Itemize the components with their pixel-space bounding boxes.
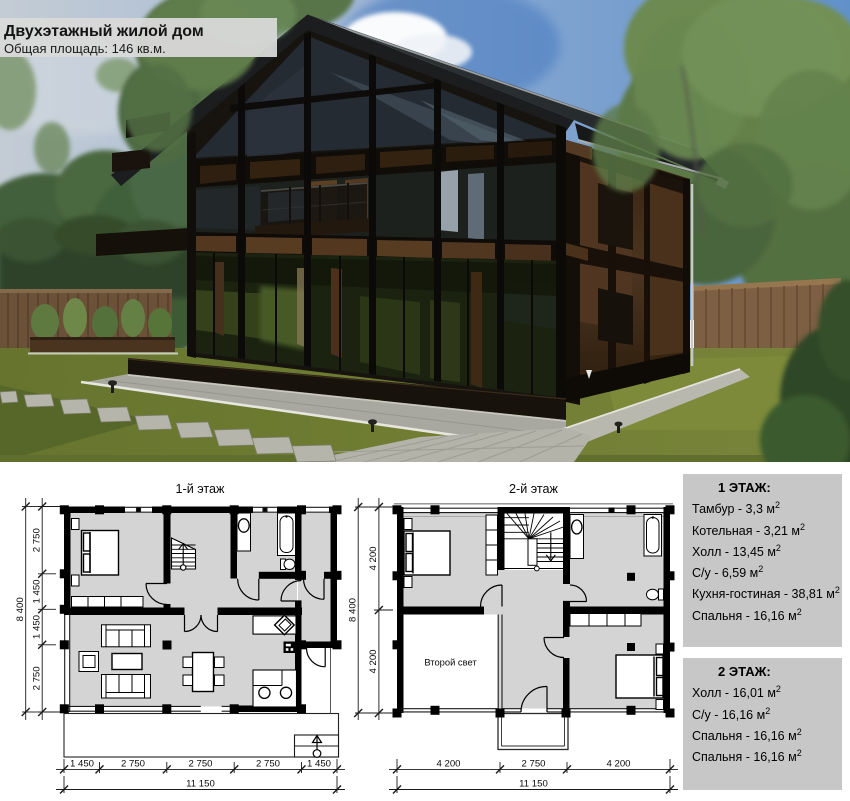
svg-text:Второй свет: Второй свет [424,657,477,668]
svg-text:1 450: 1 450 [32,615,43,639]
svg-text:8 400: 8 400 [15,597,26,621]
svg-text:11 150: 11 150 [519,779,548,790]
svg-text:2 750: 2 750 [256,759,280,770]
svg-text:2 750: 2 750 [121,759,145,770]
svg-text:2-й этаж: 2-й этаж [509,482,559,496]
svg-text:1 450: 1 450 [307,759,331,770]
svg-text:4 200: 4 200 [436,759,460,770]
svg-text:2 750: 2 750 [188,759,212,770]
svg-text:8 400: 8 400 [348,598,359,622]
svg-text:4 200: 4 200 [606,759,630,770]
svg-text:11 150: 11 150 [186,779,215,790]
svg-text:4 200: 4 200 [368,546,379,570]
svg-text:1 450: 1 450 [32,579,43,603]
svg-text:4 200: 4 200 [368,649,379,673]
svg-text:2 750: 2 750 [521,759,545,770]
svg-text:2 750: 2 750 [32,528,43,552]
svg-text:1 450: 1 450 [70,759,94,770]
svg-text:1-й этаж: 1-й этаж [176,482,226,496]
svg-text:2 750: 2 750 [32,666,43,690]
